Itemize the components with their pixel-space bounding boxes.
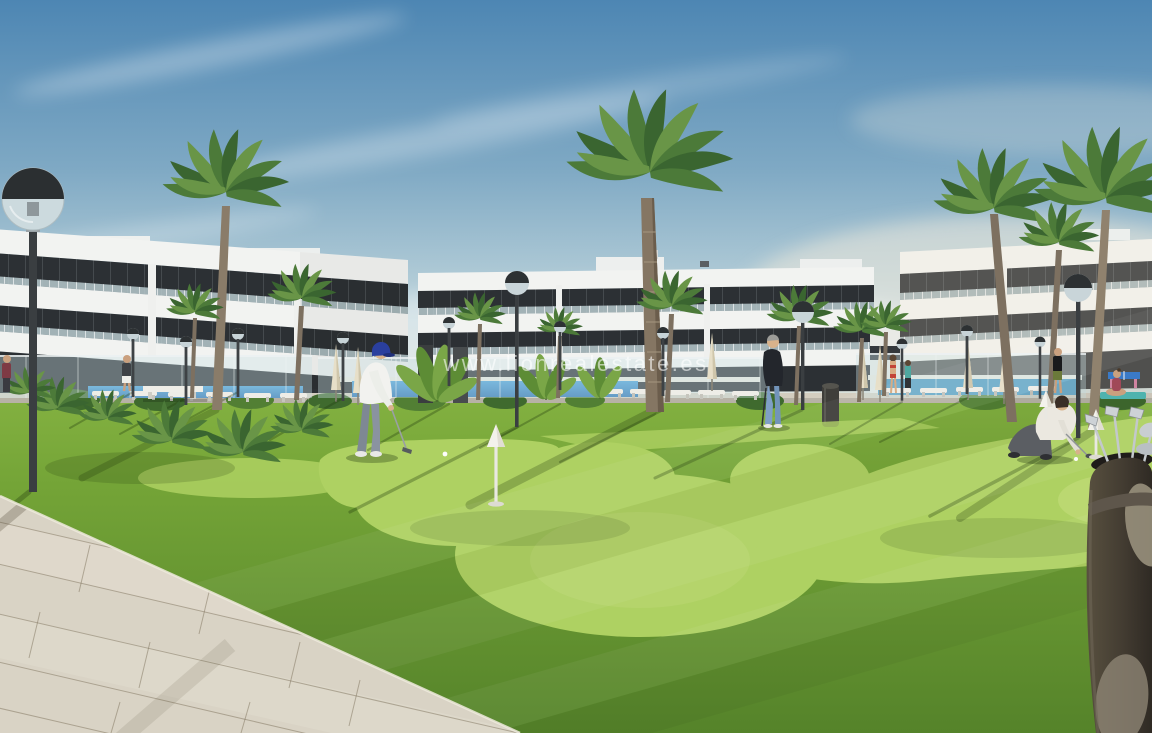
golf-ball: [443, 452, 448, 457]
pool-figure: [905, 360, 911, 388]
terrace-figure: [2, 355, 11, 392]
scene-graphic: [0, 0, 1152, 733]
real-estate-render: www.lionrealestate.es: [0, 0, 1152, 733]
golf-ball: [1074, 457, 1078, 461]
